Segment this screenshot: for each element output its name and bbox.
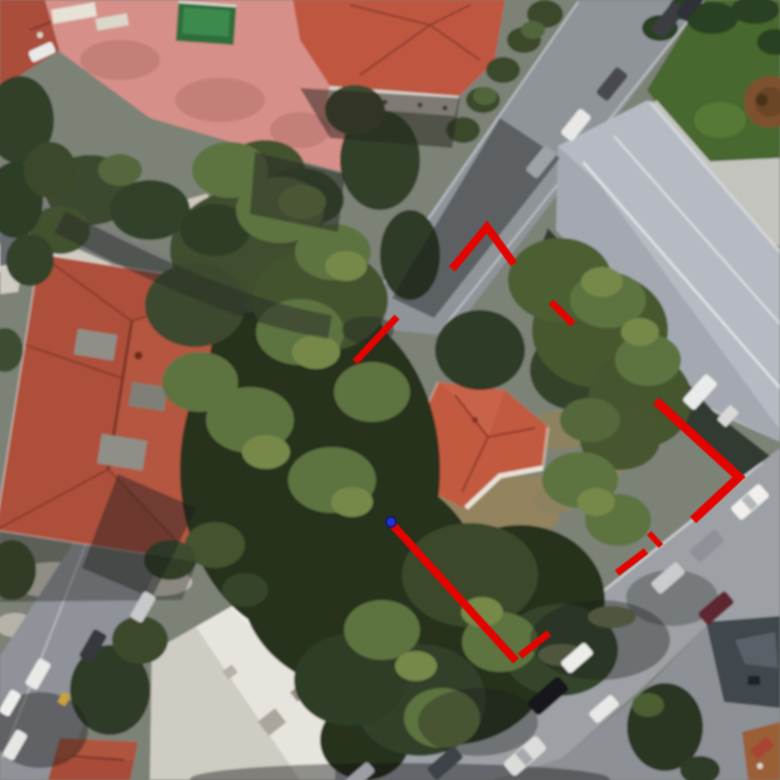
parcel-boundary-segment bbox=[355, 317, 397, 362]
parcel-boundary-segment bbox=[520, 633, 549, 656]
parcel-boundary-segment bbox=[392, 524, 516, 661]
parcel-boundary-segment bbox=[551, 302, 573, 324]
parcel-boundary-segment bbox=[656, 401, 739, 520]
annotation-layer bbox=[0, 0, 780, 780]
parcel-boundary-segment bbox=[649, 533, 661, 546]
blue-location-dot[interactable] bbox=[386, 517, 396, 527]
parcel-boundary-segment bbox=[617, 551, 646, 573]
parcel-boundary-segment bbox=[452, 227, 514, 269]
satellite-map-view[interactable] bbox=[0, 0, 780, 780]
